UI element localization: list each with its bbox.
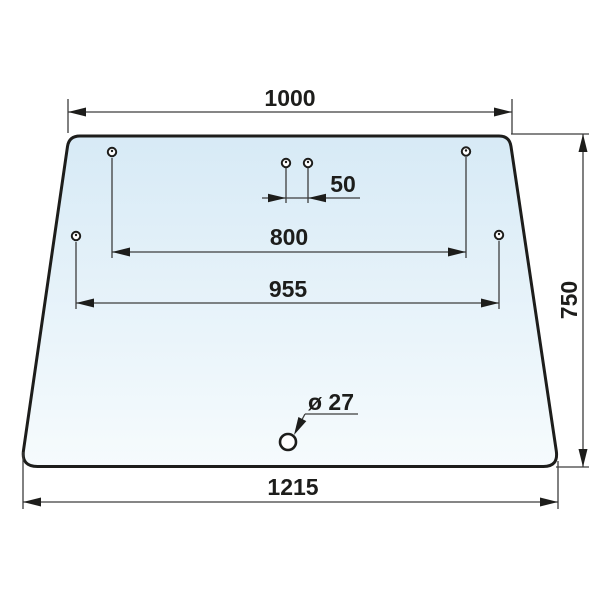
arrowhead-left [68, 108, 86, 117]
technical-drawing: 1000 50 800 955 750 [0, 0, 600, 600]
mounting-hole [72, 232, 80, 240]
mounting-hole-center-dot [75, 234, 77, 236]
mounting-hole-center-dot [465, 149, 467, 151]
drawing-canvas: 1000 50 800 955 750 [0, 0, 600, 600]
mounting-hole [108, 148, 116, 156]
mounting-hole-center-dot [285, 161, 287, 163]
mounting-hole [462, 147, 470, 155]
mounting-hole-center-dot [498, 233, 500, 235]
mounting-hole [304, 159, 312, 167]
dimension-label-upper-hole-spacing: 800 [270, 224, 308, 250]
dimension-label-top-width: 1000 [264, 85, 315, 111]
arrowhead-bottom [579, 449, 588, 467]
dimension-label-hole-diameter: ø 27 [308, 389, 354, 415]
dimension-label-bottom-width: 1215 [267, 474, 318, 500]
mounting-hole [282, 159, 290, 167]
mounting-hole-center-dot [307, 161, 309, 163]
dimension-label-height: 750 [556, 281, 582, 319]
mounting-hole [495, 231, 503, 239]
dimension-top-width: 1000 [68, 85, 512, 134]
dimension-label-hole-pair-spacing: 50 [330, 171, 356, 197]
arrowhead-left [23, 498, 41, 507]
arrowhead-right [494, 108, 512, 117]
dimension-label-mid-hole-spacing: 955 [269, 276, 308, 302]
arrowhead-right [540, 498, 558, 507]
arrowhead-top [579, 134, 588, 152]
mounting-hole-center-dot [111, 150, 113, 152]
drain-hole [280, 434, 296, 450]
